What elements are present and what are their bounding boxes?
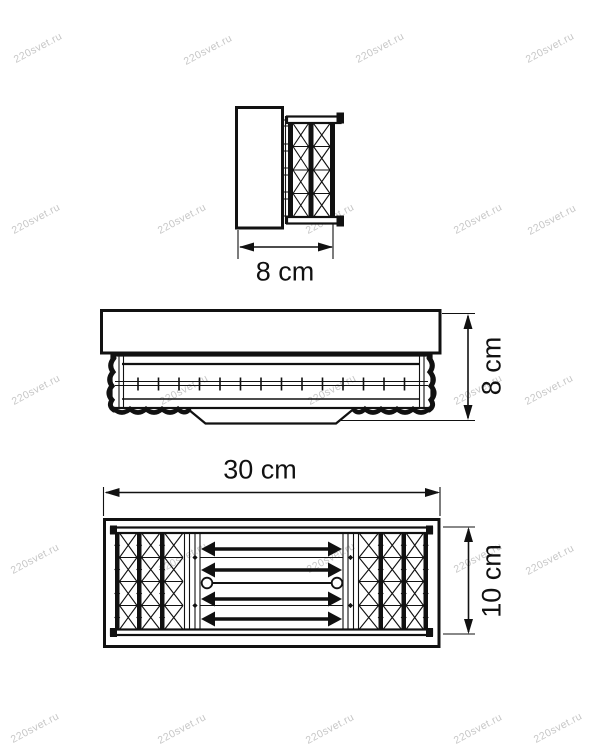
arrow-right-icon (425, 488, 440, 497)
front-canopy (189, 410, 354, 424)
plan-height-dimension (443, 527, 475, 634)
rod-end-left (202, 578, 213, 589)
arrow-up-icon (464, 314, 473, 329)
front-view-drawing (102, 311, 441, 424)
arrow-down-icon (464, 619, 473, 634)
plan-width-label: 30 cm (223, 457, 297, 484)
bead-scallops-right (354, 409, 429, 413)
side-bottom-rail (287, 217, 341, 224)
front-height-dimension (341, 314, 475, 421)
side-view-drawing (237, 108, 345, 229)
side-mount-plate (237, 108, 283, 229)
plan-width-dimension (104, 487, 441, 516)
arrow-left-icon (239, 243, 254, 252)
arrow-up-icon (464, 527, 473, 542)
arrow-right-icon (318, 243, 333, 252)
arrow-down-icon (464, 405, 473, 420)
plan-bottom-rail (111, 630, 432, 636)
front-mount-plate (102, 311, 441, 354)
fixture-line-drawing (0, 0, 600, 750)
technical-drawing: 220svet.ru220svet.ru220svet.ru220svet.ru… (0, 0, 600, 750)
plan-view-drawing (105, 520, 440, 647)
plan-height-label: 10 cm (479, 544, 506, 618)
side-width-dimension (238, 225, 333, 260)
front-height-label: 8 cm (479, 337, 506, 396)
arrow-left-icon (105, 488, 120, 497)
bead-tick-marks (138, 378, 405, 391)
side-top-rail (287, 117, 341, 124)
rod-end-right (332, 578, 343, 589)
side-width-label: 8 cm (256, 259, 315, 286)
bead-scallops-left (114, 409, 189, 413)
plan-top-rail (111, 528, 432, 534)
